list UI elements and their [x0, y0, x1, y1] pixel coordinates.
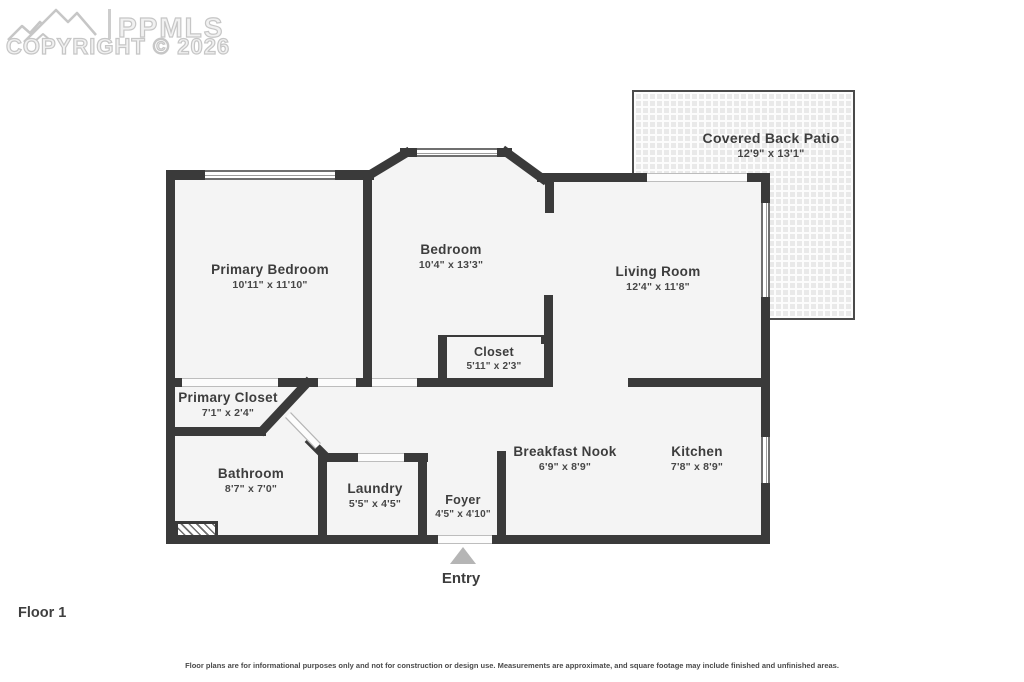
room-dimensions: 7'1" x 2'4" — [128, 407, 328, 419]
room-dimensions: 7'8" x 8'9" — [597, 461, 797, 473]
room-dimensions: 10'4" x 13'3" — [351, 259, 551, 271]
wall — [278, 378, 318, 387]
wall — [356, 378, 372, 387]
room-name: Bedroom — [351, 242, 551, 257]
disclaimer-text: Floor plans are for informational purpos… — [0, 661, 1024, 670]
room-name: Living Room — [558, 264, 758, 279]
copyright-text: COPYRIGHT © 2026 — [6, 34, 230, 60]
wall — [541, 335, 550, 344]
wall — [545, 173, 554, 213]
wall — [400, 148, 418, 157]
room-label-living-room: Living Room 12'4" x 11'8" — [558, 264, 758, 293]
room-label-primary-closet: Primary Closet 7'1" x 2'4" — [128, 390, 328, 419]
room-dimensions: 4'5" x 4'10" — [393, 509, 533, 520]
wall — [496, 148, 512, 157]
shower-hatch — [175, 521, 218, 538]
room-name: Bathroom — [151, 466, 351, 481]
room-dimensions: 10'11" x 11'10" — [160, 279, 380, 291]
room-name: Kitchen — [597, 444, 797, 459]
room-dimensions: 5'11" x 2'3" — [424, 361, 564, 372]
window — [205, 170, 335, 180]
floor-title: Floor 1 — [18, 605, 66, 621]
wall — [318, 453, 358, 462]
wall — [628, 378, 770, 387]
room-name: Primary Closet — [128, 390, 328, 405]
room-label-closet: Closet 5'11" x 2'3" — [424, 345, 564, 372]
bedroom-door-opening — [372, 378, 417, 387]
closet-opening-line — [447, 335, 541, 337]
ppmls-watermark: PPMLS COPYRIGHT © 2026 — [6, 2, 266, 72]
wall — [417, 378, 553, 387]
wall — [166, 427, 266, 436]
wall — [761, 483, 770, 544]
wall — [492, 535, 770, 544]
wall — [166, 170, 206, 180]
floorplan-page: PPMLS COPYRIGHT © 2026 — [0, 0, 1024, 682]
wall — [761, 297, 770, 437]
window — [417, 148, 497, 157]
entry-arrow-icon — [450, 547, 476, 564]
patio-door-opening — [647, 173, 747, 182]
room-label-foyer: Foyer 4'5" x 4'10" — [393, 493, 533, 520]
room-label-bedroom: Bedroom 10'4" x 13'3" — [351, 242, 551, 271]
room-name: Primary Bedroom — [160, 262, 380, 277]
room-label-kitchen: Kitchen 7'8" x 8'9" — [597, 444, 797, 473]
room-name: Closet — [424, 345, 564, 359]
floor-interior — [0, 0, 1024, 682]
closet-front-opening — [182, 378, 278, 387]
wall — [761, 173, 770, 203]
room-label-covered-back-patio: Covered Back Patio 12'9" x 13'1" — [671, 130, 871, 160]
entry-label: Entry — [411, 570, 511, 587]
room-name: Covered Back Patio — [671, 130, 871, 146]
room-dimensions: 12'4" x 11'8" — [558, 281, 758, 293]
hall-opening — [318, 378, 356, 387]
room-label-primary-bedroom: Primary Bedroom 10'11" x 11'10" — [160, 262, 380, 291]
laundry-door-opening — [358, 453, 404, 462]
room-dimensions: 12'9" x 13'1" — [671, 148, 871, 160]
entry-door-opening — [438, 535, 492, 544]
window — [761, 203, 770, 297]
room-name: Foyer — [393, 493, 533, 507]
